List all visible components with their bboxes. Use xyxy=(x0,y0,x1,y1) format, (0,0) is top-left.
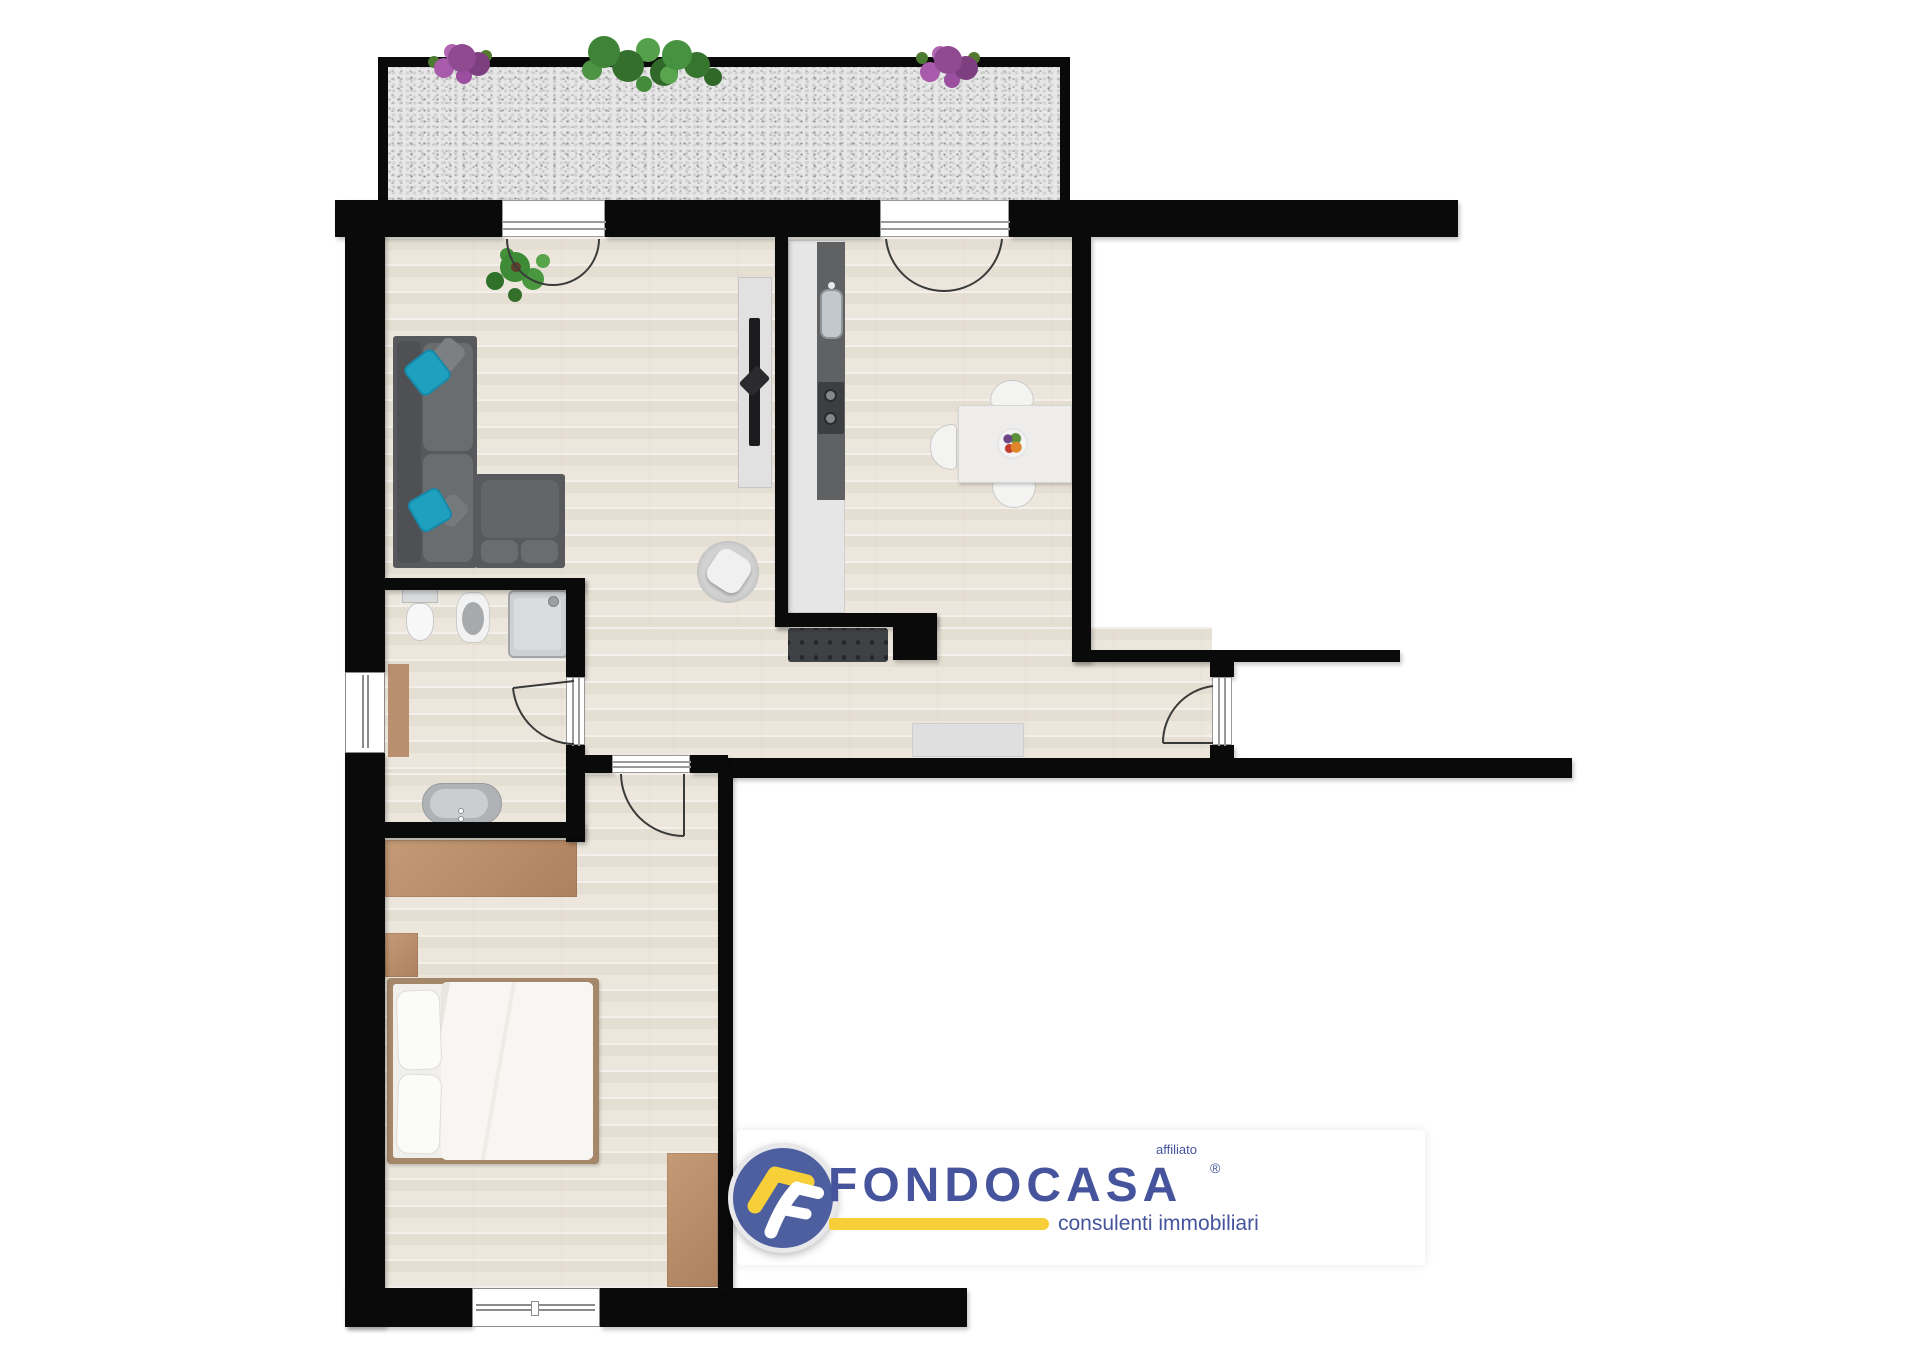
entrance-door-frame xyxy=(1212,677,1232,745)
affiliate-label: affiliato xyxy=(1156,1142,1197,1157)
bed-pillow xyxy=(396,1073,443,1154)
bathroom-right-wall-upper xyxy=(566,578,585,677)
window-cap xyxy=(531,1301,539,1316)
terrace-french-door-living xyxy=(502,200,605,237)
faucet-icon xyxy=(828,282,835,289)
toilet-tank xyxy=(402,588,438,603)
wall-top-right-segment xyxy=(1009,200,1458,237)
kitchen-lower-wall-block xyxy=(893,613,937,660)
purple-flower-bush-icon xyxy=(448,44,476,72)
sofa-seat-cushion xyxy=(481,540,518,563)
dresser xyxy=(667,1153,718,1287)
wall-top-middle-segment xyxy=(605,200,880,237)
entry-door-stub-bottom xyxy=(1210,745,1234,759)
window-glass-line xyxy=(367,675,369,748)
radiator-bench xyxy=(788,628,888,662)
brand-name: FONDOCASA xyxy=(828,1158,1182,1213)
fondocasa-logo-icon xyxy=(728,1143,838,1253)
window-glass-line xyxy=(362,675,364,748)
wall-bottom-left-segment xyxy=(345,1288,472,1327)
wall-bottom-right-segment xyxy=(600,1288,967,1327)
bidet-basin xyxy=(462,602,484,635)
kitchen-sink xyxy=(820,289,843,339)
sofa-seat-cushion xyxy=(521,540,558,563)
kitchen-partition-wall xyxy=(775,237,788,627)
nightstand xyxy=(385,933,418,977)
bedroom-top-wall-left xyxy=(585,755,612,773)
toilet-bowl xyxy=(406,603,434,641)
hall-middle-wall xyxy=(1072,650,1400,662)
bedroom-window xyxy=(472,1288,600,1327)
entry-door-stub-top xyxy=(1210,662,1234,677)
bathroom-window xyxy=(345,672,385,753)
green-shrub-icon xyxy=(588,36,620,68)
doormat xyxy=(912,723,1024,757)
terrace-wall-top xyxy=(378,57,1070,67)
bedroom-door-frame xyxy=(612,755,690,773)
terrace-wall-right xyxy=(1060,57,1070,200)
logo-underline-bar xyxy=(829,1218,1049,1230)
plant-pot-center xyxy=(511,262,521,272)
bedroom-top-wall-right xyxy=(690,755,728,773)
wall-left-lower xyxy=(345,753,385,1327)
fruit-bowl-icon xyxy=(997,428,1028,459)
bathroom-cabinet xyxy=(388,664,409,757)
terrace-gravel-floor xyxy=(388,67,1060,203)
bathroom-top-wall xyxy=(385,578,585,590)
sofa-corner-cushion xyxy=(481,480,559,538)
wall-left-upper xyxy=(345,200,385,672)
burner-icon xyxy=(824,412,837,425)
hall-bottom-wall xyxy=(728,758,1572,778)
bathroom-bottom-wall xyxy=(385,822,585,838)
terrace-wall-left xyxy=(378,57,388,200)
wardrobe xyxy=(385,840,577,897)
floor-plan-canvas: affiliato FONDOCASA ® consulenti immobil… xyxy=(0,0,1920,1358)
bathroom-door-frame xyxy=(566,677,585,745)
kitchen-worktop-dark xyxy=(817,242,845,500)
bed-pillow xyxy=(396,989,443,1070)
bed-duvet xyxy=(441,982,593,1160)
shower-head-icon xyxy=(548,596,559,607)
green-shrub-icon xyxy=(662,40,692,70)
dining-right-wall xyxy=(1072,237,1091,662)
purple-flower-bush-icon xyxy=(934,46,962,74)
burner-icon xyxy=(824,389,837,402)
registered-trademark-symbol: ® xyxy=(1210,1160,1220,1176)
faucet-icon xyxy=(458,808,464,814)
fondocasa-f-mark-icon xyxy=(733,1148,833,1248)
brand-tagline: consulenti immobiliari xyxy=(1058,1212,1259,1236)
terrace-french-door-dining xyxy=(880,200,1009,237)
